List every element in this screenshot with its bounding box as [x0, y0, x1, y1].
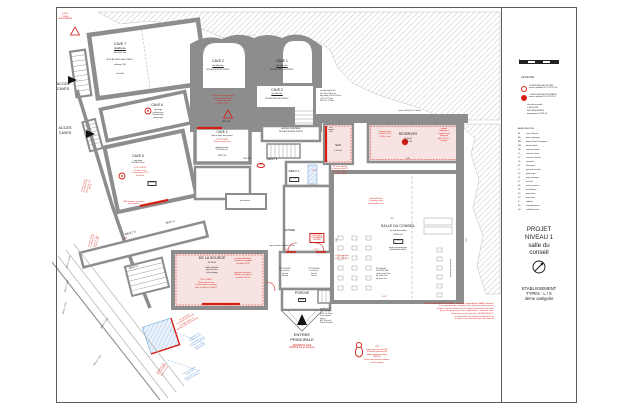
ann-escalier-beton-note: escalier béton 2V GC 90 et 93cm ht larg …: [320, 90, 341, 103]
north-compass-icon: [531, 259, 547, 275]
ann-cave3-line1: désaffectée: [271, 93, 282, 96]
ann-cave5-box: 05.29: [147, 181, 156, 186]
ann-cave4-hsp2: HSP 218: [243, 158, 251, 160]
ann-salle-title: SALLE DU CONSEIL: [381, 224, 415, 228]
ann-salle-dim-left: 608: [336, 238, 338, 241]
ann-degt1-label: DEGT 1: [289, 170, 300, 174]
ann-salle-dim-right: 1117: [466, 238, 468, 242]
ann-cave1-line1: désaffectée: [276, 65, 287, 68]
ann-cave5-sub: stockage 30.90m2 env: [132, 160, 145, 166]
ann-reserves-title: RESERVES: [399, 132, 417, 136]
ann-desserte-voie: DESSERTE VOIE ENGINS rue de barreyre: [289, 345, 314, 351]
ann-dim-ramp-1: 365cm / 7.63%: [66, 256, 72, 269]
ann-acces-caves-1: ACCES CAVES: [56, 82, 69, 91]
ann-cave3-title: CAVE 3: [271, 88, 283, 92]
ann-salle-parois-rot: parois panneaux bois: [450, 259, 452, 277]
ann-sas-title: SAS: [335, 144, 341, 148]
title-panel: 012345 LEGENDE LOCAUX A RISQUES MOYENS p…: [501, 7, 577, 403]
ann-entree-principale: ENTREE PRINCIPALE: [290, 332, 314, 342]
ann-up-degt3: 2 UP: [123, 237, 128, 241]
ann-source-sub1: 32.90m2: [208, 262, 217, 265]
ann-dim-ramp-2: 346cm / 7.63%: [64, 280, 70, 293]
ann-cave4-hsp: HSP 216: [218, 155, 226, 158]
ann-cave7-title: CAVE 7: [114, 42, 127, 46]
ann-reserves-red-right: plafond fibralythe à remplacer par plaqu…: [438, 128, 450, 142]
ann-source-title: DE LA SOURCE: [199, 256, 226, 260]
plan-sheet: le B01 POSER DES ALARMESCAVE 7désaffecté…: [0, 0, 618, 412]
ann-cave6-sub: stockage (utilisée par l'association pin…: [152, 109, 163, 119]
ann-pp-left-2: PF bois 73x210 à remplacer par porte CF …: [88, 234, 101, 249]
abbreviations-list: IAarase inférieureBAbarre antipaniqueBEV…: [518, 133, 574, 214]
ann-sas-sub: 5.20 m2: [334, 150, 342, 153]
ann-candelabre-note: Futur candélabre solaire LED hauteur d'e…: [181, 366, 201, 383]
ann-cave2-line2: NON ACCESS. AU PUBLIC: [206, 69, 229, 71]
ann-porche-label: PORCHE: [295, 291, 310, 295]
ann-cave7-line5: sol sable: [116, 73, 124, 76]
scale-bar: 012345: [519, 60, 559, 64]
ann-bev-cave5: BEV à prévoir au dessus de la marche: [124, 201, 145, 206]
ann-cave4-sub2: plafond voutés 20.50m2 env: [215, 147, 228, 152]
ann-dessous-note: DESSOUS DE TOIT à POSER dessin 76 env: [156, 363, 169, 378]
ann-up-door-2: 2 UP: [314, 249, 319, 252]
legend-title: LEGENDE: [521, 76, 535, 79]
ann-cave7-line2: 36.00m2 env: [114, 52, 127, 55]
ann-pei-note: PEI poteau incendie de 100 130m3/H penda…: [365, 346, 390, 364]
ann-salle-dim-top: 957: [390, 218, 393, 220]
ann-tapis-note: tapis encastré dévaloir - 1.5m: [270, 245, 295, 247]
ann-source-sub2: HSPs plaf 244 plénum 16cm sol carrelage: [206, 267, 219, 275]
ann-derogation-note: DEMANDE DE DEROGATION marches extérieure…: [187, 332, 209, 353]
ann-plafond-fibralite-note: plafond fibralite à remplacer par plafon…: [368, 198, 383, 205]
legend-item: LOCAUX A RISQUES IMPORTANTS parois et pl…: [521, 94, 577, 101]
ann-source-red-right1: panneaux fibralythe à recouvrir par plaq…: [234, 258, 252, 265]
ann-pp-left-1: PP bois 73x210 à remplacer par PORTE CF …: [81, 178, 94, 194]
ann-pp-door-spec: PP 1Vantail 151x220h, BM seuil ressaut 3…: [376, 268, 391, 280]
ann-degt2-oval: 040: [257, 163, 265, 168]
ann-centrale-desenf: CENTRALE COMMANDE DESENF.: [309, 233, 324, 243]
ann-reserves-sub: 25.80m2 HSP 250: [404, 138, 412, 143]
abbreviation-row: VHventilation haute: [518, 209, 574, 213]
ann-up-stair: 1 UP: [382, 296, 387, 299]
ann-pf-bois-note: PF bois à remplacer par cloisonnement CF…: [212, 95, 234, 105]
ann-cave4-sub1: (liée au foyer des jeunes): [211, 135, 232, 137]
ann-pv-remplacer-note: PV 150x220h à remplacer par PV dont 1 va…: [173, 311, 200, 332]
ann-degt1-up: 2 UP: [312, 170, 317, 173]
ann-salle-sub1: (ex salle Saussade): [390, 230, 407, 232]
ann-machinerie-label: machinerie: [240, 200, 250, 203]
ann-hsp-190: HSP 190: [222, 121, 230, 124]
ann-cave4-title: CAVE 4: [216, 130, 227, 134]
ann-cave7-line3: NON ACCESS. AU PUBLIC: [107, 59, 134, 62]
etablissement-info: ETABLISSEMENTTYPES : L / X3ème catégorie: [501, 286, 577, 301]
scale-bar-segments: [519, 60, 559, 64]
ann-cave1-title: CAVE 1: [276, 59, 288, 63]
ann-source-red-center: 1 UP 1 DEGT 19 personnes max (si nécessa…: [195, 279, 217, 289]
risque-moyen-circle-icon: [521, 86, 527, 92]
abbreviations-title: ABREVIATIONS: [518, 128, 534, 130]
ann-salle-sub2: 103.00 m2: [393, 234, 403, 237]
ann-degt5-label: DEGT 5: [165, 220, 175, 225]
ann-cave5-title: CAVE 5: [132, 154, 144, 158]
ann-salle-level: +1.12: [393, 239, 403, 244]
ann-degt3-label: DEGT 3: [125, 231, 136, 237]
ann-cave5-red: 1 UP 1 DEGT 75 pers. max 2 extincteurs C…: [132, 167, 149, 177]
ann-pv-door-1: PV 150x220h va et vient ép 5cm serrure: [279, 268, 290, 278]
ann-pp-imposte-note: PP avec imposte à remplacer par PF CF 1/…: [332, 166, 348, 176]
ann-pv-equiper-note: 4 PV à équiper et BP OUVERT: [335, 255, 349, 260]
project-title: PROJETNIVEAU 1salle duconseil: [501, 226, 577, 257]
ann-cave2-title: CAVE 2: [212, 59, 224, 63]
ann-up-door-1: 2 UP: [284, 249, 289, 252]
fire-safety-notes: sécurité incendie :1 SEUL ERPSSI CATEGOR…: [527, 104, 547, 116]
ann-cave4-red: 1 UP 1 DEGT 19 personnes max: [213, 139, 230, 144]
risque-important-circle-icon: [521, 95, 527, 101]
ann-escalier-1vt-note: escalier 1 Vt G 27 à 29cm M 14.5 à 16cm …: [320, 308, 333, 325]
legend-item: LOCAUX A RISQUES MOYENS parois et plafon…: [521, 85, 577, 92]
ann-cave7-line4: métrage 230: [114, 64, 126, 67]
ann-porche-level: 0.00: [298, 298, 306, 303]
ann-sas-vmc: vmc armoire élec: [328, 127, 334, 134]
ann-cave7-line1: désaffectée: [114, 48, 126, 51]
ann-acces-caves-2: ACCES CAVES: [58, 126, 71, 135]
ann-dim-ramp-4: 346cm / 7.63%: [100, 318, 109, 330]
ann-degt1-level: +1.12: [289, 177, 299, 182]
ann-cave6-title: CAVE 6: [151, 103, 163, 107]
ann-cave1-line2: NON ACCESS. AU PUBLIC: [270, 69, 293, 71]
ann-reserves-wall-dim: pierres 100 (h.ht) ± 4 dévers: [399, 110, 422, 112]
ann-cave3-line2: NON ACCESS. AU PUBLIC: [265, 98, 288, 100]
ann-entree-int: ENTREE: [285, 229, 295, 232]
ann-dim-ramp-5: 365cm / 7.63%: [93, 355, 102, 367]
ann-ancien-cimetiere: ANCIEN CIMETIERE NON ACCESS AU PUBLIC: [279, 128, 303, 133]
ann-niveau-note: SUR L'ENSEMBLE DU NIVEAU : ressaisie l'e…: [424, 303, 494, 321]
legend-items: LOCAUX A RISQUES MOYENS parois et plafon…: [521, 85, 577, 103]
ann-dim-ramp-3: 340cm / 7.63%: [62, 302, 68, 315]
ann-degt4-label: DEGT 4: [128, 265, 138, 270]
ann-reserves-dim: 635: [406, 158, 409, 161]
ann-salle-sub3: parois panneaux bois plafond dalle 60x60: [389, 247, 407, 252]
ann-alarm-note: le B01 POSER DES ALARMES: [58, 13, 72, 21]
ann-cave2-line1: désaffectée: [212, 65, 223, 68]
ann-pv-door-2: PV 150x220h va et vient ép 5cm serrure: [308, 268, 319, 278]
ann-degt2-label: DEGT 2: [267, 158, 278, 162]
ann-reserves-red-left: panneaux bois isolation CF 1h à 200 à cr…: [379, 131, 392, 138]
ann-source-red-right2: plancher haut bois à doubler avec plaque…: [234, 272, 251, 279]
